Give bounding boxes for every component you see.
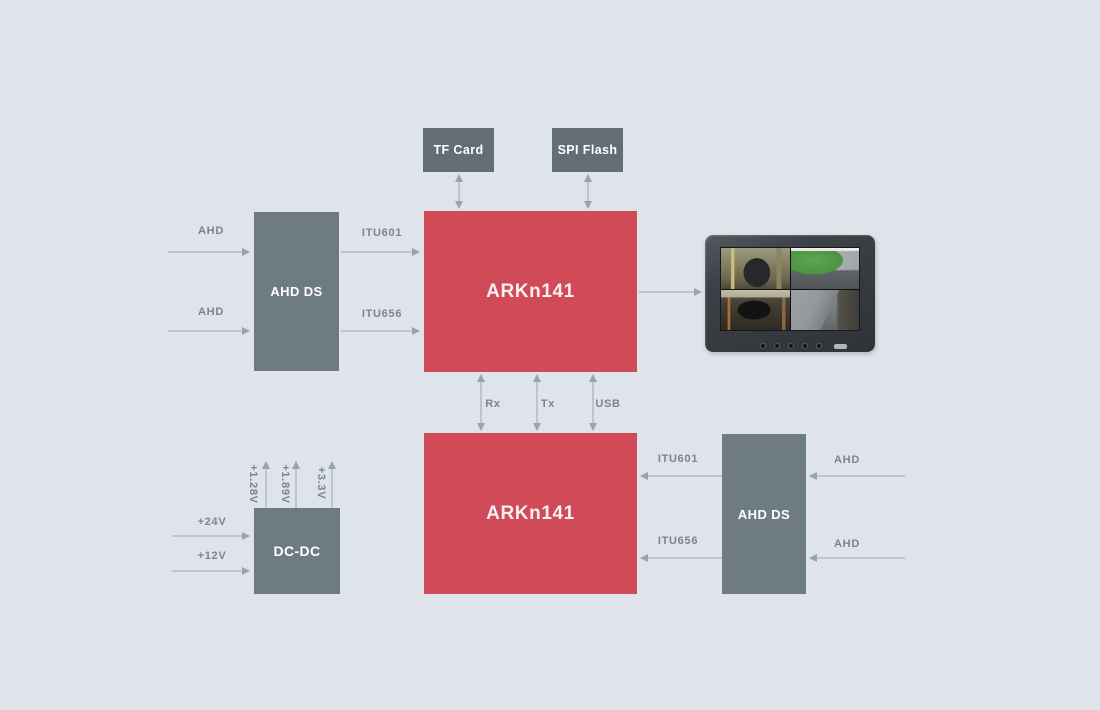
camera-view-bus-interior-front: [721, 248, 790, 289]
label-ahd-bottom-2: AHD: [834, 538, 860, 550]
monitor-button-icon: [761, 344, 765, 348]
label-1v89: +1.89V: [279, 464, 291, 503]
label-itu656-top: ITU656: [362, 308, 402, 320]
monitor-button-icon: [789, 344, 793, 348]
block-diagram-canvas: TF Card SPI Flash AHD DS ARKn141 ARKn141…: [0, 0, 1100, 710]
monitor-button-icon: [803, 344, 807, 348]
label-rx: Rx: [485, 398, 500, 410]
label-itu601-top: ITU601: [362, 227, 402, 239]
block-dc-dc: DC-DC: [254, 508, 340, 594]
block-ahd-ds-right: AHD DS: [722, 434, 806, 594]
block-tf-card: TF Card: [423, 128, 494, 172]
label-3v3: +3.3V: [315, 467, 327, 500]
label-ahd-bottom-1: AHD: [834, 454, 860, 466]
label-usb: USB: [595, 398, 620, 410]
block-ahd-ds-left: AHD DS: [254, 212, 339, 371]
label-ahd-top-1: AHD: [198, 225, 224, 237]
label-itu601-bottom: ITU601: [658, 453, 698, 465]
label-ahd-top-2: AHD: [198, 306, 224, 318]
camera-view-roadside: [791, 290, 860, 331]
camera-view-green-bus-exterior: [791, 248, 860, 289]
block-spi-flash: SPI Flash: [552, 128, 623, 172]
label-itu656-bottom: ITU656: [658, 535, 698, 547]
monitor-buttons: [761, 344, 821, 348]
block-soc-top: ARKn141: [424, 211, 637, 372]
label-12v: +12V: [198, 550, 227, 562]
monitor-button-icon: [775, 344, 779, 348]
monitor-power-led: [834, 344, 847, 349]
quad-view-cctv-monitor-image: [705, 235, 875, 352]
monitor-screen: [720, 247, 860, 331]
block-soc-bottom: ARKn141: [424, 433, 637, 594]
label-24v: +24V: [198, 516, 227, 528]
monitor-button-icon: [817, 344, 821, 348]
camera-view-bus-interior-rear: [721, 290, 790, 331]
label-1v28: +1.28V: [247, 464, 259, 503]
label-tx: Tx: [541, 398, 555, 410]
